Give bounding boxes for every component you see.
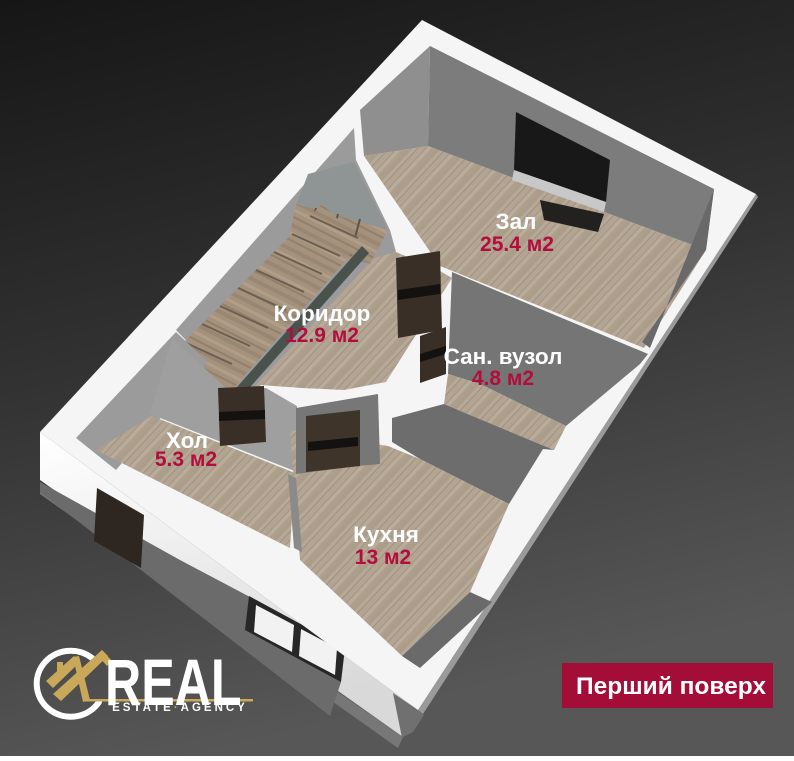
svg-text:Перший поверх: Перший поверх [576,673,766,700]
svg-text:Сан. вузол: Сан. вузол [444,344,563,369]
svg-text:13 м2: 13 м2 [355,546,411,569]
svg-text:25.4 м2: 25.4 м2 [480,233,554,256]
svg-text:ESTATE·AGENCY: ESTATE·AGENCY [112,702,248,714]
svg-text:Зал: Зал [496,209,537,234]
svg-text:12.9 м2: 12.9 м2 [285,324,359,347]
svg-text:4.8 м2: 4.8 м2 [472,367,534,390]
svg-text:Кухня: Кухня [353,522,419,547]
svg-text:Коридор: Коридор [274,301,371,326]
svg-text:5.3 м2: 5.3 м2 [155,448,217,471]
